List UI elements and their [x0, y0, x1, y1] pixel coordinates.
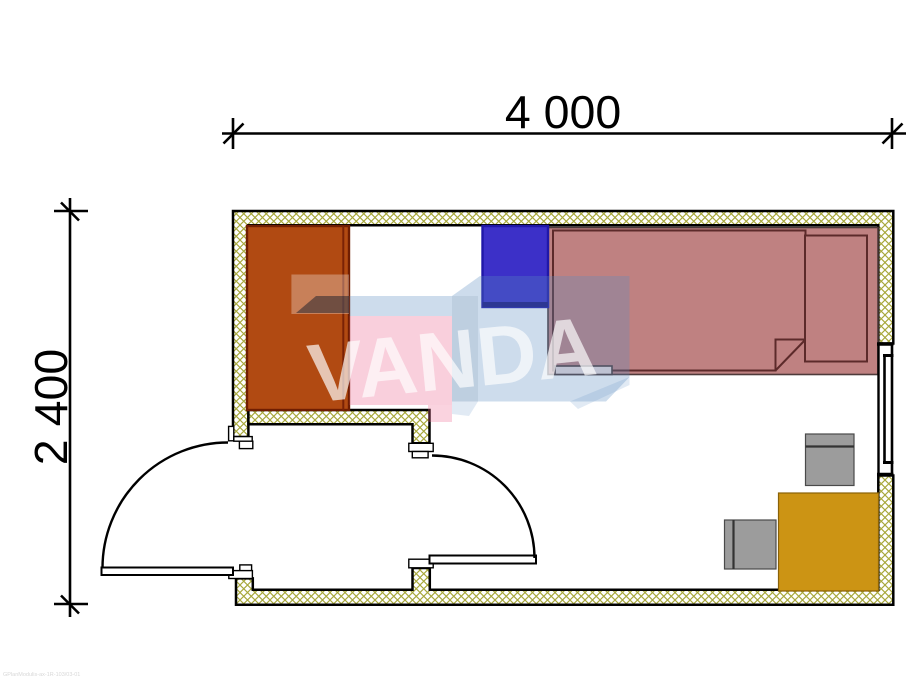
svg-text:2 400: 2 400 — [25, 349, 77, 465]
svg-text:4 000: 4 000 — [505, 86, 621, 138]
svg-text:GPlanModulis-ax-1R-103/03-01: GPlanModulis-ax-1R-103/03-01 — [3, 672, 80, 678]
